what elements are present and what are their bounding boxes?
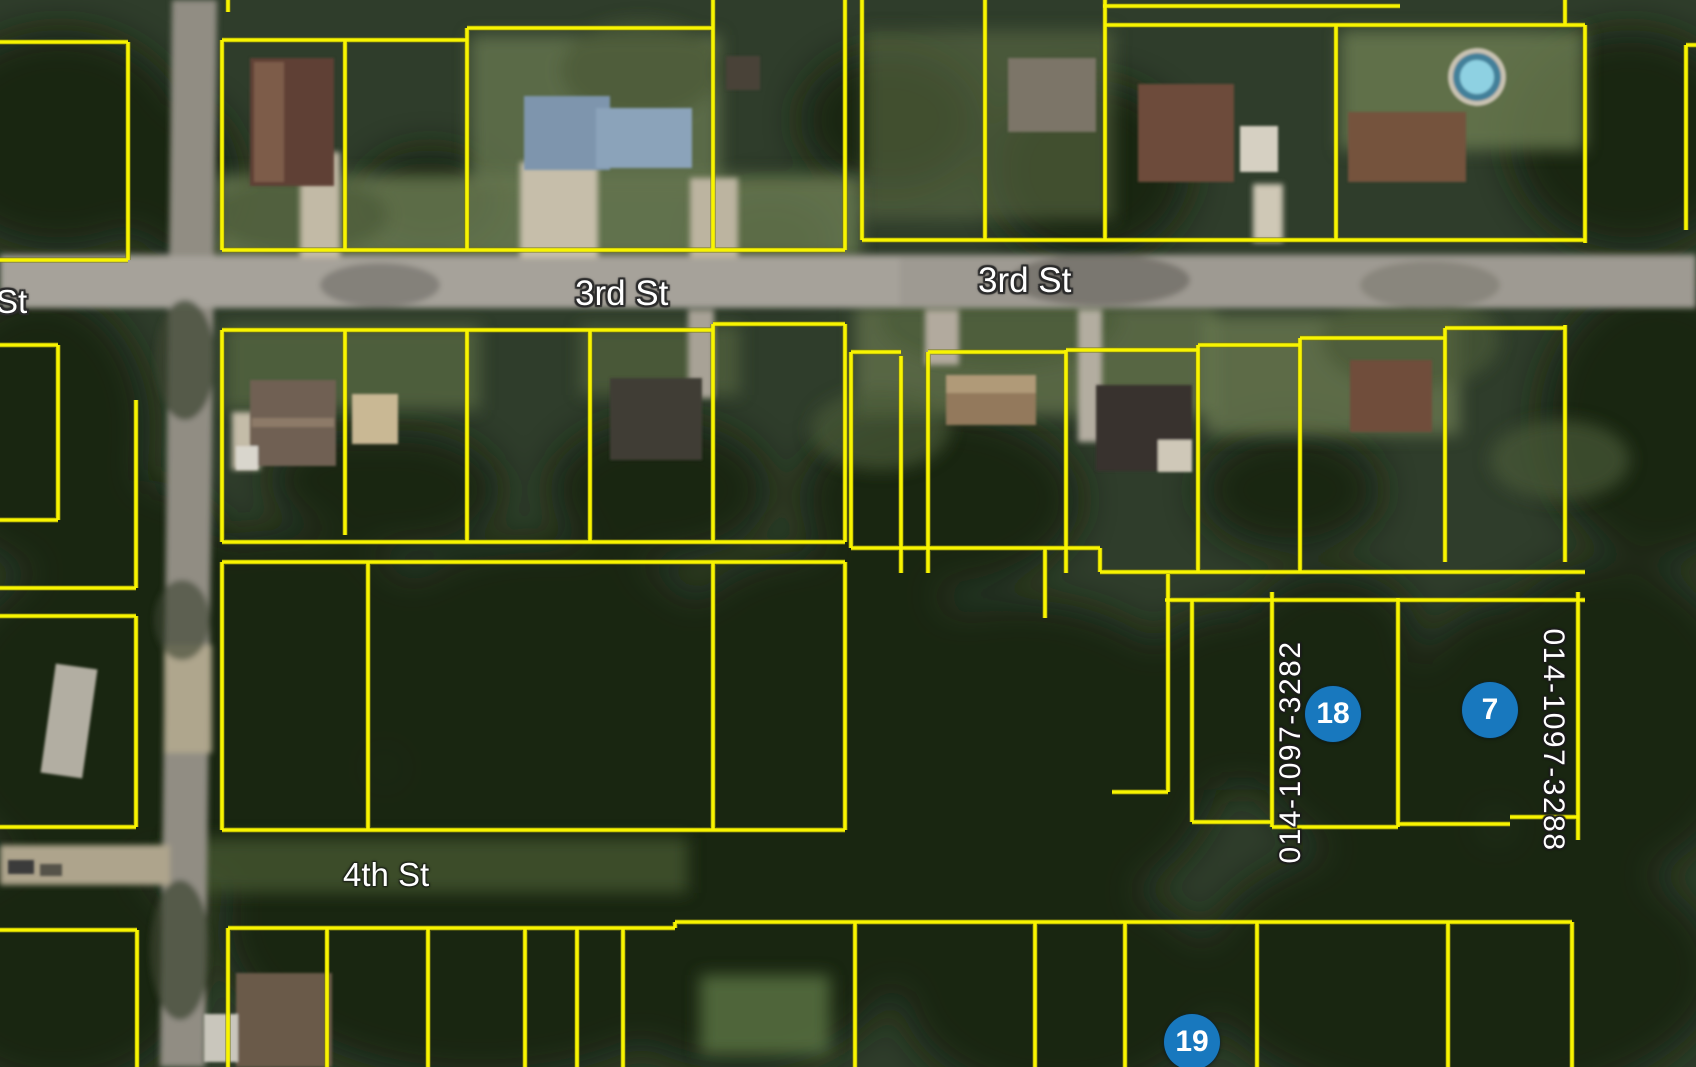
parcel-id-label-3282: 014-1097-3282 [1276,640,1306,863]
map-canvas[interactable]: 3rd St 3rd St 4th St St 014-1097-3282 01… [0,0,1696,1067]
map-marker-19-label: 19 [1175,1025,1208,1059]
car [236,446,258,470]
house [236,973,332,1067]
map-marker-7-label: 7 [1482,693,1499,727]
street-label-4th-st: 4th St [343,858,429,891]
shed [726,56,760,90]
street-label-3rd-st-west: 3rd St [575,276,668,311]
car [40,864,62,876]
street-label-3rd-st-east: 3rd St [978,263,1071,298]
camper [204,1014,238,1062]
parcel-id-label-3288: 014-1097-3288 [1538,628,1568,851]
house [1008,58,1096,132]
map-marker-19[interactable]: 19 [1164,1014,1220,1067]
map-marker-18-label: 18 [1316,697,1349,731]
house [1350,360,1432,432]
house [1138,84,1234,182]
aerial-imagery [0,0,1696,1067]
house [610,378,702,460]
patio [352,394,398,444]
car [8,860,34,874]
house [1348,112,1466,182]
street-label-edge-partial: St [0,285,27,318]
map-marker-7[interactable]: 7 [1462,682,1518,738]
garage [1240,126,1278,172]
map-marker-18[interactable]: 18 [1305,686,1361,742]
